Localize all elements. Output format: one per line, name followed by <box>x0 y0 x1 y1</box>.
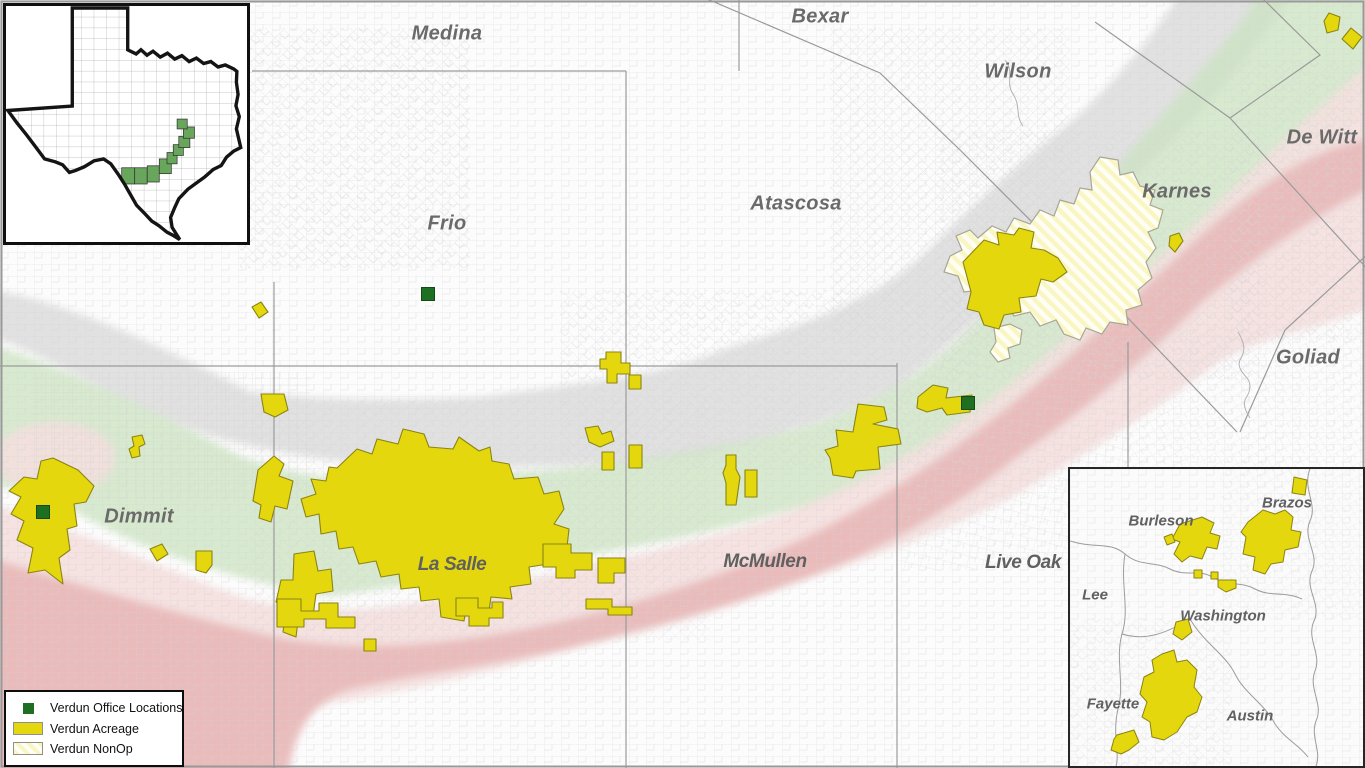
acreage-polygon <box>629 445 642 468</box>
acreage-swatch <box>13 722 43 735</box>
office-location-swatch <box>23 703 34 714</box>
acreage-polygon <box>602 452 614 470</box>
acreage-map: MedinaBexarWilsonDe WittFrioAtascosaKarn… <box>0 0 1365 768</box>
legend-label: Verdun Acreage <box>50 722 139 736</box>
acreage-polygon <box>1292 477 1307 495</box>
legend: Verdun Office Locations Verdun Acreage V… <box>4 690 184 767</box>
legend-label: Verdun NonOp <box>50 742 133 756</box>
legend-row-nonop: Verdun NonOp <box>12 742 176 756</box>
acreage-polygon <box>364 639 376 651</box>
east-area-inset <box>1068 467 1365 768</box>
acreage-polygon <box>629 375 641 389</box>
legend-label: Verdun Office Locations <box>50 701 183 715</box>
acreage-polygon <box>1194 570 1202 578</box>
east-inset-canvas <box>1070 469 1363 766</box>
acreage-polygon <box>745 470 757 497</box>
legend-row-office: Verdun Office Locations <box>12 701 176 715</box>
texas-overview-inset <box>3 3 250 245</box>
legend-row-acreage: Verdun Acreage <box>12 722 176 736</box>
texas-inset-canvas <box>6 6 247 242</box>
nonop-swatch <box>13 742 43 755</box>
acreage-polygon <box>1211 572 1218 579</box>
